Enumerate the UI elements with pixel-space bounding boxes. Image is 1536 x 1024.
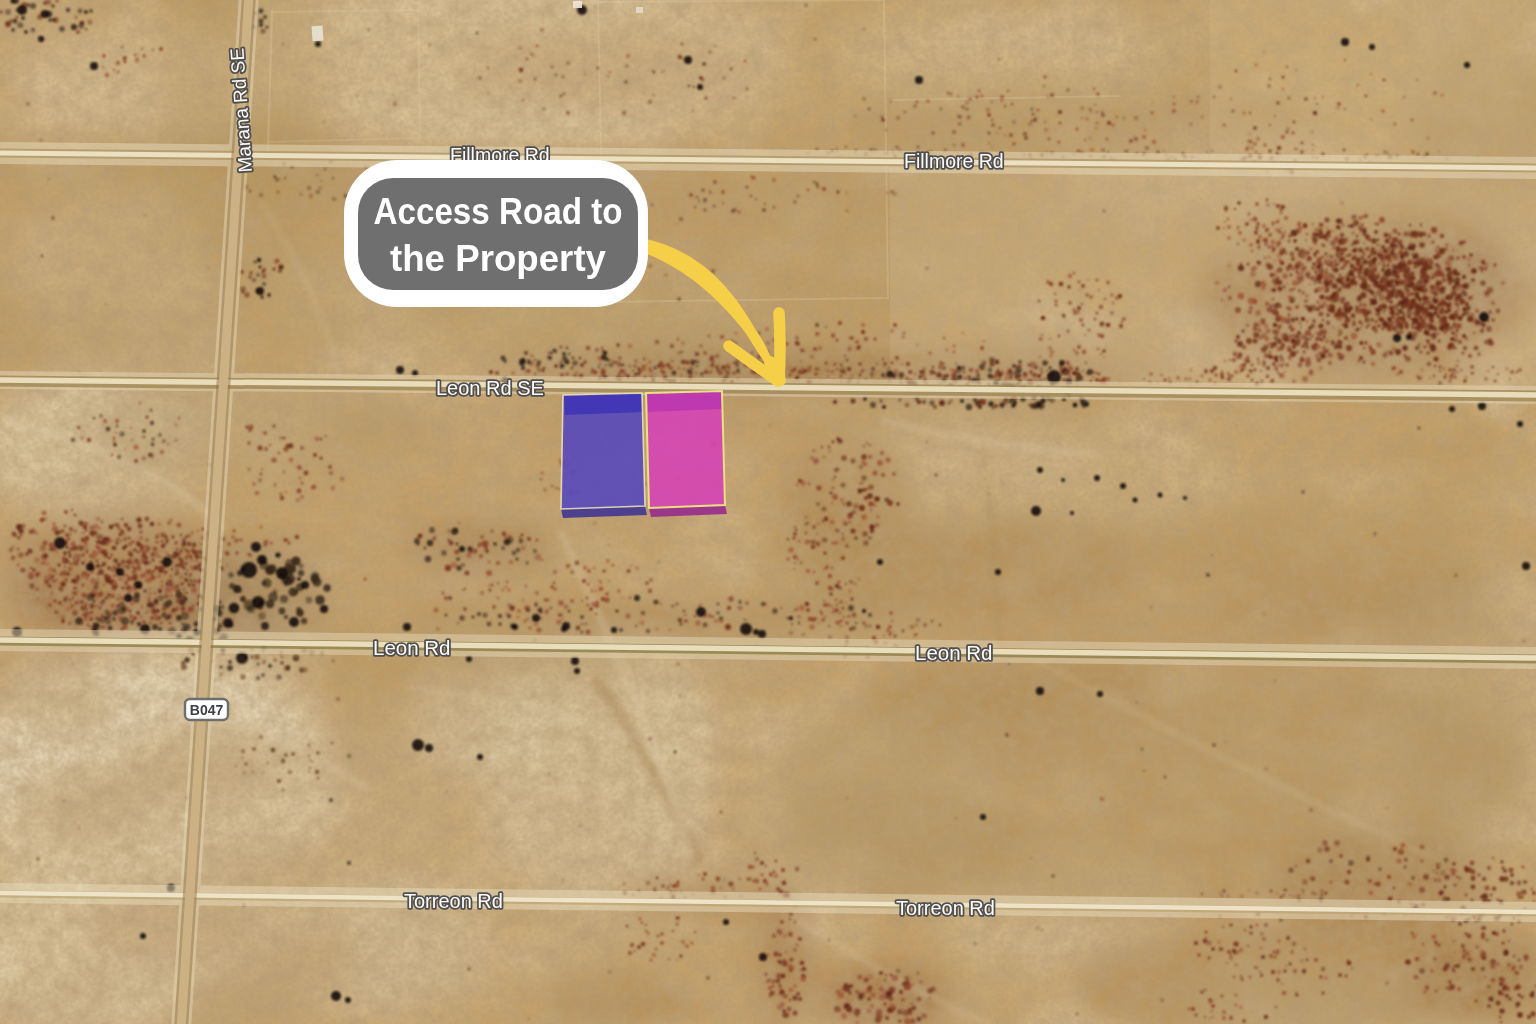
svg-text:Leon Rd: Leon Rd (373, 636, 451, 659)
svg-text:Fillmore Rd: Fillmore Rd (904, 150, 1004, 172)
svg-text:Leon Rd: Leon Rd (915, 641, 993, 664)
svg-text:Access Road to: Access Road to (374, 191, 623, 232)
svg-text:Leon Rd SE: Leon Rd SE (436, 377, 544, 399)
svg-text:the Property: the Property (390, 238, 606, 279)
svg-text:Torreon Rd: Torreon Rd (896, 897, 995, 919)
svg-text:B047: B047 (190, 702, 224, 718)
svg-text:Torreon Rd: Torreon Rd (404, 890, 503, 912)
